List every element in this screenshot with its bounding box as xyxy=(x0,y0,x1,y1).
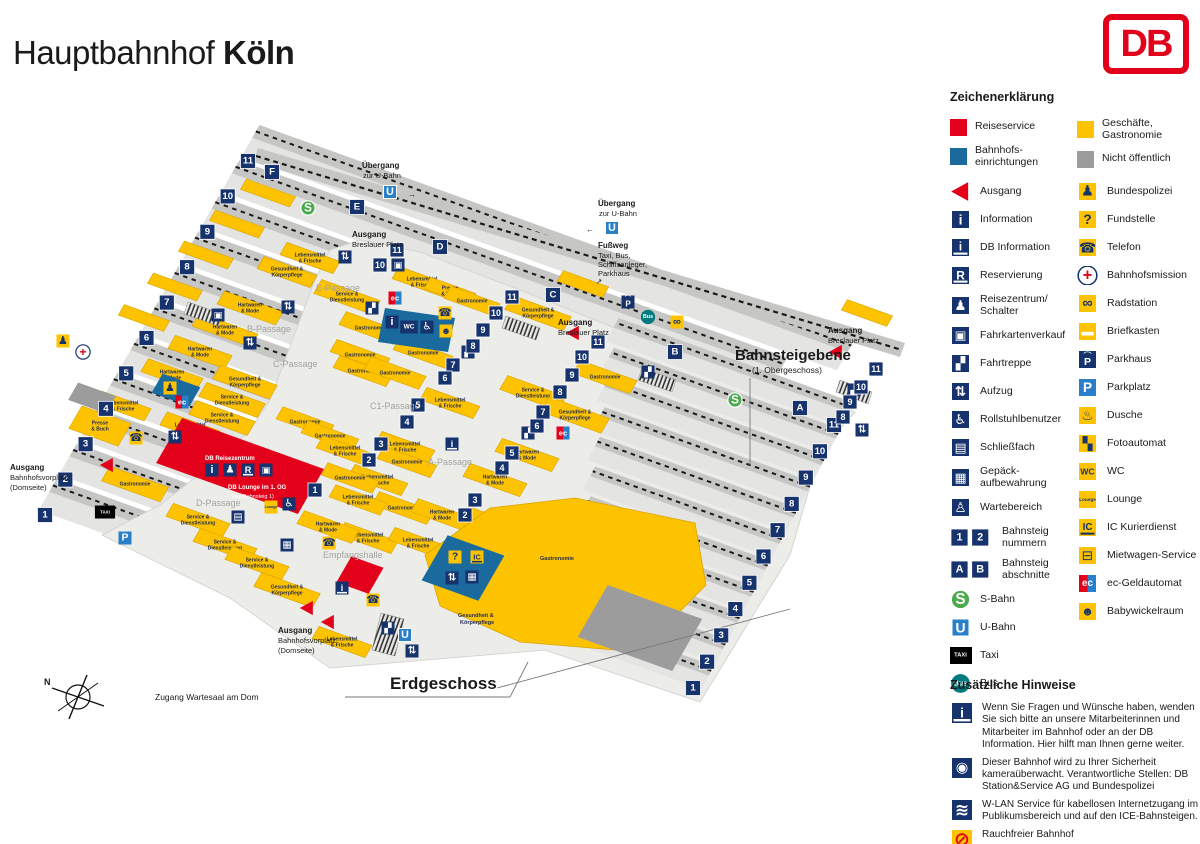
platform-plate-3: 3 xyxy=(714,628,729,643)
aufzug-icon-glyph: ⇅ xyxy=(448,573,457,584)
ubahn-icon: U xyxy=(384,186,397,199)
shop-label: & Frische xyxy=(334,451,357,457)
shop-label: & Frische xyxy=(439,403,462,409)
mietwagen-icon-glyph: ⊟ xyxy=(1082,548,1093,563)
platform-plate-E: E xyxy=(350,200,365,215)
dbinfo-icon: i xyxy=(336,582,349,595)
map-label: Bahnsteigebene xyxy=(735,347,851,364)
schliessfach-icon-glyph: ▤ xyxy=(954,440,966,455)
shop-label: & Mode xyxy=(319,527,337,533)
shop-label: Gastronomie xyxy=(392,460,423,466)
platform-plate-9: 9 xyxy=(200,224,215,239)
legend-item-dusche: ♨Dusche xyxy=(1077,406,1198,425)
fahrkarten-icon: ▣ xyxy=(392,259,405,272)
shop-label: Dienstleistung xyxy=(330,297,364,303)
baby-icon-glyph: ☻ xyxy=(1081,605,1094,619)
fahrtreppe-icon-glyph: ▞ xyxy=(955,356,966,372)
legend-item-label: Rollstuhlbenutzer xyxy=(980,414,1061,426)
fundstelle-icon-glyph: ? xyxy=(452,552,458,563)
ec-icon: ec xyxy=(389,292,402,305)
taxi-icon-glyph: TAXI xyxy=(954,653,967,659)
aufzug-icon-glyph: ⇅ xyxy=(246,338,255,349)
platform-plate-3: 3 xyxy=(468,493,482,507)
bus-icon-glyph: Bus xyxy=(643,314,653,320)
radstation-icon: ∞ xyxy=(1079,295,1096,312)
gepaeck-icon-glyph: ▦ xyxy=(954,470,966,485)
platform-plate-10: 10 xyxy=(373,258,387,272)
plate-text: 11 xyxy=(593,337,602,347)
legend-item-label: Reisezentrum/ Schalter xyxy=(980,294,1048,317)
aufzug-legend-icon: ⇅ xyxy=(950,382,972,401)
platform-plate-11: 11 xyxy=(505,290,519,304)
legend-item-gepaeck: ▦Gepäck- aufbewahrung xyxy=(950,466,1077,489)
shop-label: Gastronomie xyxy=(335,476,366,482)
platform-plate-2: 2 xyxy=(362,453,376,467)
page: Lebensmittel& FrischeGesundheit &Körperp… xyxy=(0,0,1200,844)
map-label: Ausgang xyxy=(278,626,312,635)
shop-label: Körperpflege xyxy=(271,590,302,596)
map-label: Übergang xyxy=(598,199,635,208)
map-label: → xyxy=(408,190,416,199)
page-title-city: Köln xyxy=(223,34,294,71)
legend-item-mission: +Bahnhofsmission xyxy=(1077,266,1198,285)
compass-rose: N xyxy=(44,675,104,719)
plate-text: B xyxy=(672,347,679,358)
legend-item-ec: ecec-Geldautomat xyxy=(1077,574,1198,593)
legend-item-label: Bahnsteig nummern xyxy=(1002,526,1049,549)
map-label: Gesundheit & xyxy=(458,613,494,619)
wlan-icon: ≋ xyxy=(952,800,972,820)
platform-plate-8: 8 xyxy=(784,496,799,511)
legend-item-label: S-Bahn xyxy=(980,594,1015,606)
plate-text: 1 xyxy=(42,510,48,521)
dusche-icon-glyph: ♨ xyxy=(1081,408,1093,423)
rauchfrei-icon-glyph: ⊘ xyxy=(954,829,970,844)
aufzug-icon: ⇅ xyxy=(244,337,257,350)
platform-plate-10: 10 xyxy=(489,306,503,320)
lounge-icon: Lounge xyxy=(265,501,278,514)
plate-text: 7 xyxy=(164,297,169,308)
legend-item-telefon: ☎Telefon xyxy=(1077,238,1198,257)
platform-plate-8: 8 xyxy=(836,410,850,424)
legend-item-label: Schließfach xyxy=(980,442,1035,454)
ausgang-legend-icon xyxy=(950,182,972,201)
taxi-icon-glyph: TAXI xyxy=(100,510,110,515)
aufzug-icon: ⇅ xyxy=(406,645,419,658)
map-label: Parkhaus xyxy=(598,269,630,278)
platform-plate-1: 1 xyxy=(308,483,322,497)
mietwagen-icon: ⊟ xyxy=(1079,547,1096,564)
legend-item-ausgang: Ausgang xyxy=(950,182,1077,201)
fotoautomat-icon-glyph: ▚ xyxy=(1082,435,1093,452)
plate-text: 7 xyxy=(541,407,546,417)
plate-text: 8 xyxy=(471,341,476,351)
legend-item-fotoautomat: ▚Fotoautomat xyxy=(1077,434,1198,453)
mission-icon: + xyxy=(76,345,90,359)
plate-text: 10 xyxy=(856,382,866,392)
map-label: Ausgang xyxy=(558,318,592,327)
legend-item-label: Telefon xyxy=(1107,242,1141,254)
reserv-icon: R xyxy=(952,267,969,284)
aufzug-icon-glyph: ⇅ xyxy=(955,384,966,399)
map-label: Empfangshalle xyxy=(323,550,383,560)
mission-icon-glyph: + xyxy=(79,345,86,359)
telefon-legend-icon: ☎ xyxy=(1077,238,1099,257)
note-row: ≋W-LAN Service für kabellosen Internetzu… xyxy=(950,799,1200,824)
shop-label: & Mode xyxy=(433,515,451,521)
platform-plate-6: 6 xyxy=(139,331,154,346)
map-label: Breslauer Platz xyxy=(558,328,609,337)
legend-item-parkplatz: PParkplatz xyxy=(1077,378,1198,397)
lounge-icon-glyph: Lounge xyxy=(265,505,278,509)
legend-item-plates: ABBahnsteig abschnitte xyxy=(950,558,1077,581)
shop-label: Dienstleistung xyxy=(240,563,274,569)
map-label: DB Lounge im 1. OG xyxy=(228,485,287,491)
map-label: Breslauer Platz xyxy=(828,336,879,345)
plate-text: 10 xyxy=(491,308,501,318)
plate-text: 10 xyxy=(222,191,233,202)
map-label: Erdgeschoss xyxy=(390,674,497,693)
additional-notes-title: Zusätzliche Hinweise xyxy=(950,678,1200,692)
kamera-icon-glyph: ◉ xyxy=(956,760,969,776)
plate-text: 7 xyxy=(775,525,780,536)
parkhaus-icon-glyph: P xyxy=(625,299,631,308)
platform-plate-A: A xyxy=(951,561,968,578)
shop-label: Körperpflege xyxy=(271,272,302,278)
shop-label: & Buch xyxy=(91,426,109,432)
legend-swatch xyxy=(950,119,967,136)
telefon-icon: ☎ xyxy=(366,594,379,607)
legend-item-warte: ♙Wartebereich xyxy=(950,498,1077,517)
legend-swatch-row: Reiseservice xyxy=(950,118,1077,136)
telefon-icon: ☎ xyxy=(322,537,335,550)
plate-text: 1 xyxy=(690,683,696,694)
plate-text: 6 xyxy=(443,373,448,383)
ec-icon-glyph: ec xyxy=(559,429,567,438)
legend-item-label: Bahnsteig abschnitte xyxy=(1002,558,1050,581)
platform-plate-4: 4 xyxy=(400,415,414,429)
note-row: ◉Dieser Bahnhof wird zu Ihrer Sicherheit… xyxy=(950,757,1200,794)
plate-text: 9 xyxy=(803,472,808,483)
legend-item-label: Information xyxy=(980,214,1033,226)
kamera-legend-icon: ◉ xyxy=(950,757,974,779)
plate-text: 2 xyxy=(463,510,468,520)
plate-text: 1 xyxy=(313,485,318,495)
legend-item-label: Parkplatz xyxy=(1107,382,1151,394)
legend-item-label: Ausgang xyxy=(980,186,1021,198)
reisez-icon-glyph: ♟ xyxy=(225,465,234,476)
map-label: (Domseite) xyxy=(10,483,47,492)
plate-text: C xyxy=(550,290,557,301)
legend-item-radstation: ∞Radstation xyxy=(1077,294,1198,313)
legend-item-label: Babywickelraum xyxy=(1107,606,1183,618)
aufzug-icon-glyph: ⇅ xyxy=(858,425,867,436)
baby-icon: ☻ xyxy=(1079,603,1096,620)
legend-item-label: Gepäck- aufbewahrung xyxy=(980,466,1047,489)
fahrkarten-icon: ▣ xyxy=(952,327,969,344)
parkplatz-icon: P xyxy=(119,532,132,545)
plate-text: 8 xyxy=(184,262,190,273)
map-label: Ausgang xyxy=(352,230,386,239)
legend-item-baby: ☻Babywickelraum xyxy=(1077,602,1198,621)
aufzug-icon: ⇅ xyxy=(952,383,969,400)
schliessfach-icon: ▤ xyxy=(232,511,245,524)
shop-label: Gastronomie xyxy=(590,375,621,381)
legend-item-fahrkarten: ▣Fahrkartenverkauf xyxy=(950,326,1077,345)
wc_n-icon: WC xyxy=(400,321,418,334)
ec-legend-icon: ec xyxy=(1077,574,1099,593)
aufzug-icon-glyph: ⇅ xyxy=(408,646,417,657)
platform-plate-6: 6 xyxy=(530,419,544,433)
plate-text: D xyxy=(437,242,444,253)
parkhaus-icon: ⌒P xyxy=(1079,351,1096,368)
platform-plate-9: 9 xyxy=(565,368,579,382)
wc_y-icon: WC xyxy=(1079,463,1096,480)
fahrtreppe-icon: ▞ xyxy=(366,302,379,315)
platform-plate-5: 5 xyxy=(505,446,519,460)
legend-item-taxi: TAXITaxi xyxy=(950,646,1077,665)
fotoautomat-icon: ▚ xyxy=(1079,435,1096,452)
platform-plate-9: 9 xyxy=(843,395,857,409)
ec-icon-glyph: ec xyxy=(178,398,186,407)
plate-text: B xyxy=(976,564,984,576)
plate-text: 4 xyxy=(103,403,109,414)
reisez-icon: ♟ xyxy=(952,297,969,314)
platform-plate-11: 11 xyxy=(591,335,605,349)
map-label: Ausgang xyxy=(10,463,44,472)
shop-label: Körperpflege xyxy=(522,313,553,319)
platform-plate-F: F xyxy=(265,165,280,180)
legend-item-label: Taxi xyxy=(980,650,999,662)
legend-swatch-label: Reiseservice xyxy=(975,121,1035,133)
map-label: C1-Passage xyxy=(370,401,420,411)
ickurier-icon-glyph: IC xyxy=(473,553,481,562)
dbinfo-icon-glyph: i xyxy=(959,242,962,254)
telefon-icon: ☎ xyxy=(1079,239,1096,256)
shop-label: & Frische xyxy=(112,406,135,412)
fahrtreppe-icon-glyph: ▞ xyxy=(383,622,392,634)
platform-plate-D: D xyxy=(433,240,448,255)
map-label: zur U-Bahn xyxy=(599,209,637,218)
plate-text: 8 xyxy=(789,498,795,509)
plate-text: 2 xyxy=(367,455,372,465)
fahrkarten-icon-glyph: ▣ xyxy=(214,310,223,320)
legend-item-ickurier: ICIC Kurierdienst xyxy=(1077,518,1198,537)
reisez-icon-glyph: ♟ xyxy=(954,298,966,313)
info-icon: i xyxy=(206,464,219,477)
legend-title: Zeichenerklärung xyxy=(950,90,1198,104)
dbinfo-icon: i xyxy=(952,703,972,723)
lounge-legend-icon: Lounge xyxy=(1077,490,1099,509)
mietwagen-legend-icon: ⊟ xyxy=(1077,546,1099,565)
parkhaus-legend-icon: ⌒P xyxy=(1077,350,1099,369)
ickurier-icon: IC xyxy=(1079,519,1096,536)
legend-swatch-row: Nicht öffentlich xyxy=(1077,150,1198,168)
dbinfo-icon-glyph: i xyxy=(341,583,343,593)
legend-item-label: Fundstelle xyxy=(1107,214,1155,226)
legend-item-label: WC xyxy=(1107,466,1125,478)
wc_n-icon-glyph: WC xyxy=(404,324,415,331)
shop-label: Körperpflege xyxy=(559,415,590,421)
fahrtreppe-icon: ▞ xyxy=(642,366,655,379)
platform-plate-9: 9 xyxy=(798,470,813,485)
aufzug-icon-glyph: ⇅ xyxy=(171,432,180,443)
legend-item-label: Dusche xyxy=(1107,410,1143,422)
fahrkarten-legend-icon: ▣ xyxy=(950,326,972,345)
aufzug-icon: ⇅ xyxy=(856,424,869,437)
fotoautomat-legend-icon: ▚ xyxy=(1077,434,1099,453)
shop-label: & Frische xyxy=(357,538,380,544)
platform-plate-4: 4 xyxy=(495,461,509,475)
platform-plate-9: 9 xyxy=(476,323,490,337)
plate-text: A xyxy=(956,564,964,576)
plate-text: 3 xyxy=(83,439,88,450)
telefon-icon: ☎ xyxy=(438,307,451,320)
legend-item-reisez: ♟Reisezentrum/ Schalter xyxy=(950,294,1077,317)
gepaeck-icon: ▦ xyxy=(466,571,479,584)
ubahn-icon-glyph: U xyxy=(386,186,394,198)
info-icon-glyph: i xyxy=(391,316,394,328)
parkplatz-legend-icon: P xyxy=(1077,378,1099,397)
legend-item-wc_y: WCWC xyxy=(1077,462,1198,481)
bundespolizei-icon: ♟ xyxy=(57,335,70,348)
legend-item-label: Briefkasten xyxy=(1107,326,1160,338)
legend-item-label: Radstation xyxy=(1107,298,1157,310)
map-label: A-Passage xyxy=(428,457,472,467)
platform-plate-1: 1 xyxy=(951,529,968,546)
shop-label: & Frische xyxy=(299,258,322,264)
radstation-icon-glyph: ∞ xyxy=(673,316,681,328)
shop-label: Dienstleistung xyxy=(516,393,550,399)
platform-plate-10: 10 xyxy=(575,350,589,364)
plate-text: 4 xyxy=(405,417,410,427)
fahrkarten-icon-glyph: ▣ xyxy=(394,260,403,270)
legend: Zeichenerklärung ReiseserviceBahnhofs- e… xyxy=(950,90,1198,702)
shop-label: Dienstleistung xyxy=(215,400,249,406)
parkplatz-icon: P xyxy=(1079,379,1096,396)
map-label: Fußweg xyxy=(598,241,628,250)
map-label: B-Passage xyxy=(247,324,291,334)
shop-label: Dienstleistung xyxy=(181,520,215,526)
legend-swatch-row: Geschäfte, Gastronomie xyxy=(1077,118,1198,141)
parkplatz-icon-glyph: P xyxy=(122,533,129,544)
legend-item-info: iInformation xyxy=(950,210,1077,229)
telefon-icon-glyph: ☎ xyxy=(322,537,335,549)
rollstuhl-icon-glyph: ♿ xyxy=(422,322,431,333)
platform-plate-5: 5 xyxy=(742,575,757,590)
legend-swatch xyxy=(1077,121,1094,138)
note-text: Dieser Bahnhof wird zu Ihrer Sicherheit … xyxy=(982,757,1200,794)
dbinfo-icon: i xyxy=(952,239,969,256)
legend-item-bundespolizei: ♟Bundespolizei xyxy=(1077,182,1198,201)
info-icon: i xyxy=(386,316,399,329)
shop-label: & Mode xyxy=(191,352,209,358)
legend-columns: ReiseserviceBahnhofs- einrichtungenAusga… xyxy=(950,118,1198,702)
legend-item-mietwagen: ⊟Mietwagen-Service xyxy=(1077,546,1198,565)
map-label: ← xyxy=(586,225,594,234)
map-label: (1. Obergeschoss) xyxy=(752,365,822,375)
baby-icon: ☻ xyxy=(440,325,453,338)
platform-plate-7: 7 xyxy=(770,523,785,538)
legend-item-label: Wartebereich xyxy=(980,502,1042,514)
legend-item-lounge: LoungeLounge xyxy=(1077,490,1198,509)
platform-plate-10: 10 xyxy=(854,380,868,394)
reserv-icon-glyph: R xyxy=(245,465,252,475)
rollstuhl-legend-icon: ♿ xyxy=(950,410,972,429)
briefkasten-icon-glyph: ▬ xyxy=(1081,325,1094,339)
map-label: Zugang Wartesaal am Dom xyxy=(155,692,259,702)
plate-text: 11 xyxy=(243,156,254,167)
plate-text: 7 xyxy=(451,360,456,370)
map-label: zur U-Bahn xyxy=(363,171,401,180)
legend-item-briefkasten: ▬Briefkasten xyxy=(1077,322,1198,341)
plate-text: 8 xyxy=(558,387,563,397)
legend-column-right: Geschäfte, GastronomieNicht öffentlich♟B… xyxy=(1077,118,1198,702)
dbinfo-legend-icon: i xyxy=(950,702,974,724)
map-label: C-Passage xyxy=(273,359,318,369)
ausgang-icon xyxy=(951,182,968,201)
fahrkarten-icon-glyph: ▣ xyxy=(262,465,271,475)
baby-icon-glyph: ☻ xyxy=(441,326,451,336)
sbahn-legend-icon: S xyxy=(950,590,972,609)
sbahn-icon-glyph: S xyxy=(955,591,965,608)
parkplatz-icon-glyph: P xyxy=(1083,380,1092,395)
gepaeck-icon: ▦ xyxy=(952,469,969,486)
shop-label: & Frische xyxy=(347,500,370,506)
fahrtreppe-icon-glyph: ▞ xyxy=(367,302,376,314)
note-row: iWenn Sie Fragen und Wünsche haben, wend… xyxy=(950,702,1200,752)
ickurier-icon: IC xyxy=(471,551,484,564)
platform-plate-pair-icon: AB xyxy=(950,560,994,579)
fahrtreppe-legend-icon: ▞ xyxy=(950,354,972,373)
legend-item-sbahn: SS-Bahn xyxy=(950,590,1077,609)
legend-item-schliessfach: ▤Schließfach xyxy=(950,438,1077,457)
legend-item-label: Fahrkartenverkauf xyxy=(980,330,1065,342)
platform-plate-7: 7 xyxy=(446,358,460,372)
mission-icon-glyph: + xyxy=(1083,267,1092,285)
plate-text: F xyxy=(269,167,275,178)
legend-item-reserv: RReservierung xyxy=(950,266,1077,285)
plate-text: 6 xyxy=(761,551,766,562)
plate-text: 2 xyxy=(704,656,709,667)
map-label: Übergang xyxy=(362,161,399,170)
plate-text: 10 xyxy=(375,260,385,270)
platform-plate-11: 11 xyxy=(241,154,256,169)
platform-plate-2: 2 xyxy=(458,508,472,522)
legend-item-label: DB Information xyxy=(980,242,1050,254)
map-label: Bahnhofsvorplatz xyxy=(10,473,68,482)
shop-label: Dienstleistung xyxy=(205,418,239,424)
legend-item-label: Mietwagen-Service xyxy=(1107,550,1196,562)
plate-text: 11 xyxy=(507,292,516,302)
fundstelle-icon: ? xyxy=(1079,211,1096,228)
bundespolizei-icon: ♟ xyxy=(1079,183,1096,200)
platform-plate-4: 4 xyxy=(98,401,113,416)
gepaeck-icon: ▦ xyxy=(281,539,294,552)
shop-label: Gastronomie xyxy=(120,482,151,488)
platform-plate-2: 2 xyxy=(700,654,715,669)
shop-label: & Mode xyxy=(216,330,234,336)
legend-item-parkhaus: ⌒PParkhaus xyxy=(1077,350,1198,369)
platform-plate-6: 6 xyxy=(438,371,452,385)
platform-plate-B: B xyxy=(668,345,683,360)
plate-text: 9 xyxy=(205,226,210,237)
db-logo: DB xyxy=(1103,14,1189,74)
platform-plate-C: C xyxy=(546,288,561,303)
rollstuhl-icon: ♿ xyxy=(952,411,969,428)
sbahn-icon: S xyxy=(301,201,315,215)
note-row: ⊘Rauchfreier Bahnhof xyxy=(950,829,1200,844)
